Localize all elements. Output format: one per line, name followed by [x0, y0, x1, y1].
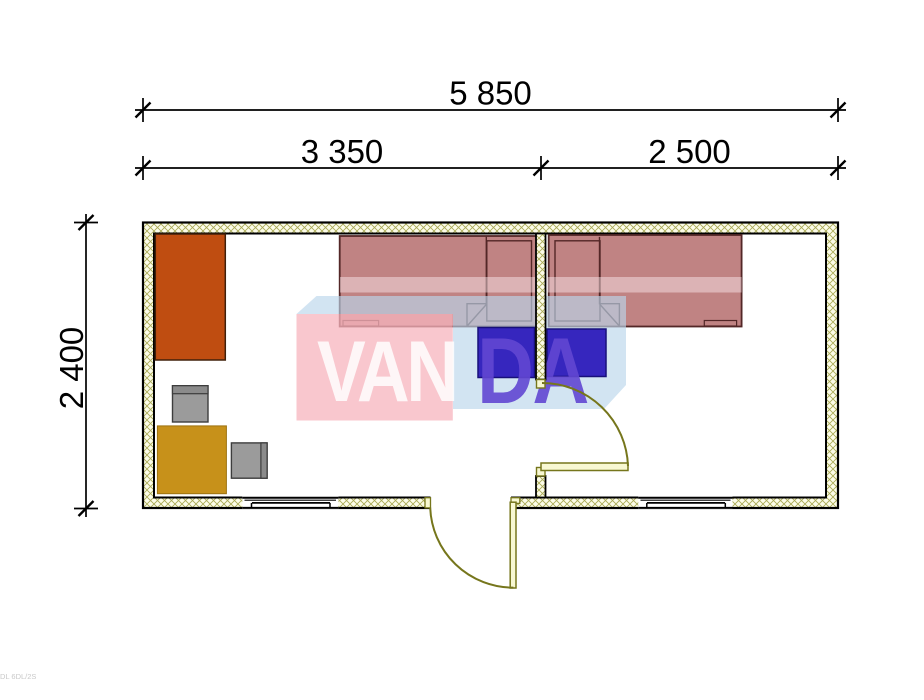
svg-text:DL 6DL/2S: DL 6DL/2S	[0, 672, 36, 681]
svg-text:5 850: 5 850	[449, 75, 532, 112]
svg-text:3 350: 3 350	[301, 133, 384, 170]
svg-text:VAN: VAN	[317, 323, 456, 419]
svg-text:DA: DA	[477, 319, 588, 424]
svg-text:2 400: 2 400	[53, 327, 90, 410]
svg-text:2 500: 2 500	[648, 133, 731, 170]
